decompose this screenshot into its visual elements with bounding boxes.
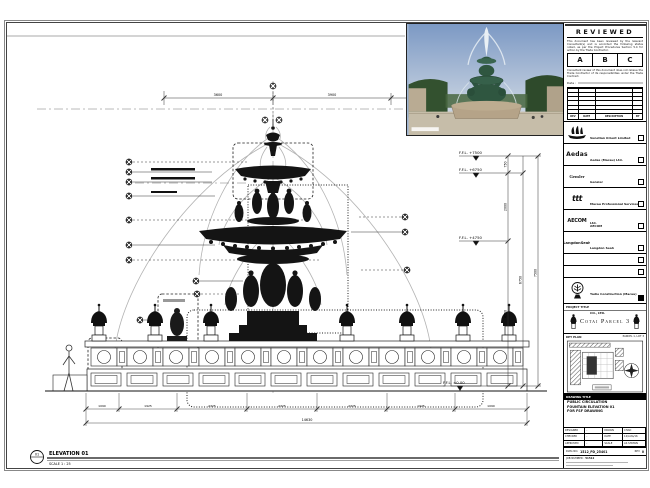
project-title: Cotai Parcel 3 bbox=[580, 318, 630, 325]
aecom-logo: AECOM bbox=[564, 210, 590, 231]
yadie-logo-icon bbox=[564, 278, 590, 303]
consultant-venetian: Venetian Orient Limited bbox=[564, 122, 646, 144]
langdon-seah-logo: LangdonSeah bbox=[564, 232, 590, 253]
ship-logo-icon bbox=[564, 122, 590, 143]
consultant-checkbox bbox=[638, 157, 644, 163]
consultant-name: Gensler bbox=[590, 180, 603, 184]
vdim-750: 750 bbox=[504, 161, 508, 167]
job-label: JOB NUMBER : bbox=[566, 457, 584, 460]
dim-top-2: 3900 bbox=[328, 93, 337, 97]
view-number: 01 bbox=[35, 453, 39, 457]
job-value: 51512 bbox=[585, 457, 594, 460]
review-stamp-text-2: Consultant review of this document does … bbox=[567, 69, 643, 78]
callout-symbol bbox=[276, 117, 282, 123]
bollard-ornament-icon bbox=[633, 314, 640, 329]
side-statue bbox=[167, 308, 187, 341]
keynote-symbol bbox=[270, 83, 276, 89]
callout-symbol bbox=[262, 117, 268, 123]
contractor-cell: Yadie Construction (Macau) CO., LTD. bbox=[564, 278, 646, 304]
project-title-cell: PROJECT TITLE Cotai Parcel 3 bbox=[564, 304, 646, 334]
level-label-0: F.F.L. ±0.00 bbox=[443, 380, 465, 385]
key-plan-label: KEY PLAN bbox=[566, 335, 581, 339]
drawing-sheet-canvas: 3600 3900 3600 bbox=[0, 0, 650, 488]
status-b: B bbox=[593, 54, 618, 66]
signoff-table: DESIGNED - DRAWN CHAD CHECKED - DATE 12/… bbox=[564, 428, 646, 448]
dim-b2: 1925 bbox=[144, 404, 152, 408]
ttt-logo: ttt bbox=[564, 188, 590, 209]
dwg-no-value: 1512_PD_25401 bbox=[580, 450, 607, 454]
review-stamp-text-1: This document has been reviewed by the r… bbox=[567, 40, 643, 52]
dim-b6: 1925 bbox=[417, 404, 425, 408]
view-title: 01 ELEVATION 01 SCALE 1 : 25 bbox=[31, 451, 560, 467]
rev-label: REV bbox=[635, 450, 640, 453]
dim-b1: 1090 bbox=[98, 404, 106, 408]
consultant-mps: ttt Macau Professional Services Ltd. bbox=[564, 188, 646, 210]
project-title-header: PROJECT TITLE bbox=[564, 304, 646, 311]
photo-caption-bar bbox=[412, 127, 439, 131]
aedas-logo: Aedas bbox=[564, 144, 590, 165]
level-label-6750: F.F.L. +6750 bbox=[459, 167, 483, 172]
dim-b5: 2325 bbox=[348, 404, 356, 408]
by-col: BY bbox=[633, 114, 642, 119]
dim-b7: 1090 bbox=[487, 404, 495, 408]
date-label: Date : bbox=[567, 81, 576, 85]
dwg-no-label: DWG NO. bbox=[566, 450, 578, 453]
scale-label: SCALE bbox=[603, 441, 623, 447]
approved-label: APPROVED bbox=[564, 441, 585, 447]
gensler-logo: Gensler bbox=[564, 166, 590, 187]
consultant-name: Langdon Seah bbox=[590, 246, 614, 250]
approved-value: - bbox=[585, 441, 603, 447]
fountain-photo bbox=[406, 23, 567, 136]
consultant-checkbox bbox=[638, 257, 644, 263]
dim-b4: 2325 bbox=[278, 404, 286, 408]
status-boxes: A B C bbox=[567, 53, 643, 67]
contractor-checkbox bbox=[638, 295, 644, 301]
blank-consultant-cell bbox=[564, 266, 646, 278]
detail-boxes bbox=[88, 143, 483, 407]
review-stamp-title: REVIEWED bbox=[567, 27, 643, 38]
vdim-4750: 4750 bbox=[504, 310, 508, 318]
date-col: DATE bbox=[579, 114, 596, 119]
drawing-title-line: FOR FSF DRAWING bbox=[564, 409, 646, 414]
dim-b3: 2325 bbox=[208, 404, 216, 408]
dim-top-1: 3600 bbox=[214, 93, 223, 97]
revision-table-header: REV DATE DESCRIPTION BY bbox=[568, 113, 642, 119]
status-a: A bbox=[568, 54, 593, 66]
consultant-checkbox bbox=[638, 201, 644, 207]
revision-table: REV DATE DESCRIPTION BY bbox=[567, 87, 643, 120]
consultant-langdon-seah: LangdonSeah Langdon Seah bbox=[564, 232, 646, 254]
vdim-7500: 7500 bbox=[534, 269, 538, 277]
job-number-row: JOB NUMBER : 51512 bbox=[564, 456, 646, 469]
consultant-aecom: AECOM AECOM bbox=[564, 210, 646, 232]
sheet-border: 3600 3900 3600 bbox=[6, 22, 647, 469]
bollard-ornament-icon bbox=[570, 314, 577, 329]
scale-value: AS SHOWN bbox=[623, 441, 646, 447]
consultant-name: Venetian Orient Limited bbox=[590, 136, 630, 140]
consultant-checkbox bbox=[638, 245, 644, 251]
compass-icon bbox=[624, 363, 638, 377]
vdim-2000: 2000 bbox=[504, 203, 508, 211]
desc-col: DESCRIPTION bbox=[596, 114, 634, 119]
blank-consultant-cell bbox=[564, 254, 646, 266]
consultant-checkbox bbox=[638, 269, 644, 275]
title-block: DO NOT SCALE DRAWING. VERIFY ALL DIMENSI… bbox=[563, 23, 646, 468]
date-line: Date : bbox=[567, 80, 643, 87]
consultant-name: Aedas (Macau) Ltd. bbox=[590, 158, 623, 162]
consultant-aedas: Aedas Aedas (Macau) Ltd. bbox=[564, 144, 646, 166]
vdim-6750: 6750 bbox=[519, 276, 523, 284]
key-plan-cell: KEY PLAN PARCEL 1, LOT 3 bbox=[564, 334, 646, 394]
detail-box-label-bar bbox=[163, 299, 185, 302]
dim-b-total: 14630 bbox=[302, 418, 313, 422]
key-plan-map bbox=[564, 340, 646, 393]
view-scale: SCALE 1 : 25 bbox=[49, 462, 71, 466]
level-label-7500: F.F.L. +7500 bbox=[459, 150, 483, 155]
consultant-checkbox bbox=[638, 179, 644, 185]
consultant-checkbox bbox=[638, 135, 644, 141]
status-c: C bbox=[618, 54, 642, 66]
consultant-checkbox bbox=[638, 223, 644, 229]
consultant-gensler: Gensler Gensler bbox=[564, 166, 646, 188]
rev-value: 0 bbox=[642, 450, 644, 454]
consultant-name: AECOM bbox=[590, 224, 602, 228]
key-plan-sublabel: PARCEL 1, LOT 3 bbox=[623, 335, 644, 339]
dwg-number-row: DWG NO. 1512_PD_25401 REV 0 bbox=[564, 448, 646, 456]
review-stamp: REVIEWED This document has been reviewed… bbox=[564, 26, 646, 122]
view-label: ELEVATION 01 bbox=[49, 451, 89, 457]
rev-col: REV bbox=[568, 114, 579, 119]
drawing-title-cell: DRAWING TITLE PUBLIC CIRCULATION FOUNTAI… bbox=[564, 394, 646, 428]
fountain-photo-image bbox=[407, 24, 566, 135]
level-label-4750: F.F.L. +4750 bbox=[459, 235, 483, 240]
